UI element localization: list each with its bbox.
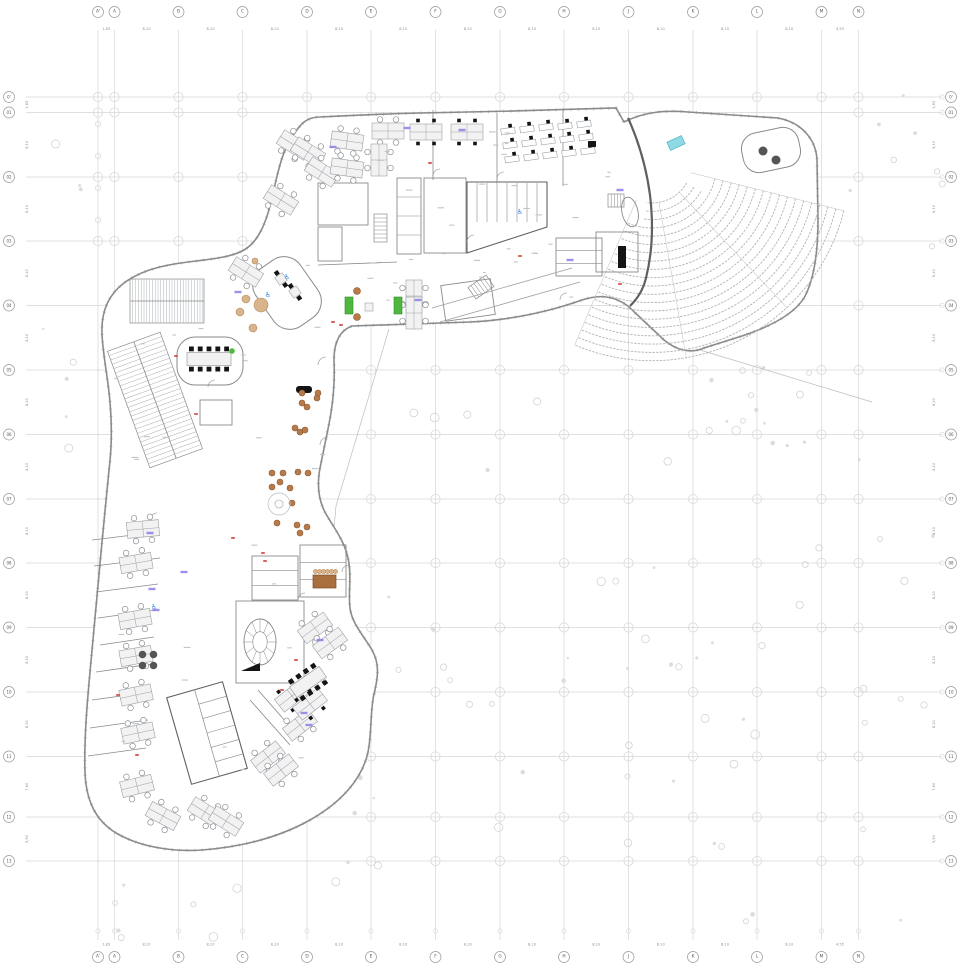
coffee-table <box>365 303 373 311</box>
meeting-table <box>187 347 231 372</box>
tan-seat <box>252 258 258 264</box>
tan-seat <box>242 295 250 303</box>
red-door-mark <box>194 413 198 415</box>
stool <box>302 427 308 433</box>
svg-text:8,10: 8,10 <box>785 27 794 31</box>
svg-text:A: A <box>113 9 116 15</box>
svg-text:13: 13 <box>6 859 12 864</box>
stool <box>274 520 280 526</box>
svg-text:8,10: 8,10 <box>271 27 280 31</box>
red-door-mark <box>261 552 265 554</box>
svg-text:8,10: 8,10 <box>25 720 29 729</box>
svg-text:K: K <box>692 954 695 960</box>
pouf <box>354 314 361 321</box>
svg-text:8,10: 8,10 <box>206 943 215 947</box>
svg-text:G: G <box>498 9 501 15</box>
stool <box>294 522 300 528</box>
svg-text:8,10: 8,10 <box>528 943 537 947</box>
svg-text:G: G <box>498 954 501 960</box>
svg-text:B: B <box>177 954 180 960</box>
svg-text:C: C <box>241 954 244 960</box>
svg-text:7,60: 7,60 <box>932 782 936 791</box>
svg-text:04: 04 <box>948 303 954 308</box>
red-door-mark <box>294 659 298 661</box>
red-door-mark <box>280 689 284 691</box>
red-door-mark <box>339 324 343 326</box>
svg-text:1,83: 1,83 <box>102 27 110 31</box>
pouf <box>354 288 361 295</box>
stool <box>269 484 275 490</box>
red-door-mark <box>116 694 120 696</box>
svg-text:M: M <box>820 954 824 960</box>
svg-text:8,10: 8,10 <box>206 27 215 31</box>
svg-text:8,10: 8,10 <box>25 333 29 342</box>
svg-text:A': A' <box>96 954 100 960</box>
red-door-mark <box>618 283 622 285</box>
svg-text:8,10: 8,10 <box>271 943 280 947</box>
svg-text:11: 11 <box>948 754 954 759</box>
svg-text:K: K <box>692 9 695 15</box>
stool <box>292 425 298 431</box>
room-label-mark <box>147 532 154 534</box>
stool <box>295 469 301 475</box>
svg-text:04: 04 <box>6 303 12 308</box>
tan-seat <box>249 324 257 332</box>
svg-text:E: E <box>370 9 373 15</box>
svg-text:5,50: 5,50 <box>25 834 29 843</box>
svg-text:N: N <box>857 954 860 960</box>
svg-text:A': A' <box>96 9 100 15</box>
svg-text:8,10: 8,10 <box>25 462 29 471</box>
svg-text:08: 08 <box>6 561 12 566</box>
room-label-mark <box>404 127 411 129</box>
svg-text:01: 01 <box>6 110 12 115</box>
svg-text:03: 03 <box>948 239 954 244</box>
svg-text:8,10: 8,10 <box>721 27 730 31</box>
svg-text:11: 11 <box>6 754 12 759</box>
svg-text:01: 01 <box>948 110 954 115</box>
stool <box>315 390 321 396</box>
stool <box>280 470 286 476</box>
svg-text:8,10: 8,10 <box>464 943 473 947</box>
wheelchair-icon: ♿ <box>284 273 290 281</box>
svg-text:07: 07 <box>948 497 954 502</box>
stool <box>287 485 293 491</box>
wheelchair-icon: ♿ <box>517 208 523 216</box>
svg-text:8,10: 8,10 <box>932 720 936 729</box>
svg-text:1,83: 1,83 <box>932 101 936 109</box>
room-label-mark <box>181 571 188 573</box>
svg-text:09: 09 <box>6 625 12 630</box>
svg-text:12: 12 <box>6 815 12 820</box>
red-door-mark <box>263 560 267 562</box>
sofa-green <box>345 297 353 314</box>
room-label-mark <box>301 712 308 714</box>
svg-text:8,10: 8,10 <box>932 655 936 664</box>
svg-text:0': 0' <box>949 95 953 100</box>
room-label-mark <box>330 146 337 148</box>
svg-text:8,10: 8,10 <box>528 27 537 31</box>
svg-text:8,10: 8,10 <box>657 27 666 31</box>
round-table <box>759 147 768 156</box>
svg-text:10: 10 <box>948 690 954 695</box>
svg-text:0': 0' <box>7 95 11 100</box>
red-door-mark <box>428 162 432 164</box>
round-chair <box>150 662 158 670</box>
svg-text:8,10: 8,10 <box>932 398 936 407</box>
stool <box>269 470 275 476</box>
stool <box>304 524 310 530</box>
site-reference-lines <box>331 329 872 560</box>
svg-text:8,10: 8,10 <box>464 27 473 31</box>
svg-text:M: M <box>820 9 824 15</box>
svg-text:J: J <box>627 954 629 960</box>
tan-seat <box>236 308 244 316</box>
svg-text:06: 06 <box>948 432 954 437</box>
svg-text:C: C <box>241 9 244 15</box>
stool <box>299 390 305 396</box>
svg-text:07: 07 <box>6 497 12 502</box>
elevator <box>618 246 626 268</box>
room-label-mark <box>567 259 574 261</box>
svg-text:8,10: 8,10 <box>335 943 344 947</box>
floor-plan-viewport: ♿♿♿♿A'A'AABBCCDDEEFFGGHHJJKKLLMMNN1,831,… <box>0 0 960 965</box>
svg-text:8,10: 8,10 <box>932 333 936 342</box>
svg-text:8,10: 8,10 <box>142 943 151 947</box>
svg-text:13: 13 <box>948 859 954 864</box>
floor-plan-drawing: ♿♿♿♿A'A'AABBCCDDEEFFGGHHJJKKLLMMNN1,831,… <box>0 0 960 965</box>
stool <box>299 400 305 406</box>
round-table <box>772 156 781 165</box>
svg-text:8,10: 8,10 <box>25 655 29 664</box>
svg-text:08: 08 <box>948 561 954 566</box>
stool <box>304 404 310 410</box>
svg-text:05: 05 <box>948 368 954 373</box>
sofa-green <box>394 297 402 314</box>
wheelchair-icon: ♿ <box>265 291 271 299</box>
svg-text:8,10: 8,10 <box>25 398 29 407</box>
svg-text:E: E <box>370 954 373 960</box>
svg-text:8,10: 8,10 <box>592 943 601 947</box>
svg-text:8,10: 8,10 <box>932 204 936 213</box>
svg-text:8,10: 8,10 <box>785 943 794 947</box>
room-label-mark <box>459 129 466 131</box>
svg-text:02: 02 <box>948 175 954 180</box>
room-label-mark <box>153 609 160 611</box>
svg-text:8,10: 8,10 <box>657 943 666 947</box>
stool <box>297 530 303 536</box>
svg-text:8,10: 8,10 <box>932 140 936 149</box>
svg-text:8,10: 8,10 <box>592 27 601 31</box>
svg-text:N: N <box>857 9 860 15</box>
svg-text:8,10: 8,10 <box>142 27 151 31</box>
svg-text:12: 12 <box>948 815 954 820</box>
plant <box>229 348 235 354</box>
round-chair <box>150 651 158 659</box>
svg-text:A: A <box>113 954 116 960</box>
svg-text:H: H <box>562 9 565 15</box>
cafe-table <box>313 575 336 588</box>
svg-text:8,10: 8,10 <box>932 462 936 471</box>
svg-text:8,10: 8,10 <box>721 943 730 947</box>
building <box>85 108 818 850</box>
stool <box>277 479 283 485</box>
svg-text:5,50: 5,50 <box>932 834 936 843</box>
svg-text:10: 10 <box>6 690 12 695</box>
svg-text:8,10: 8,10 <box>25 591 29 600</box>
svg-text:8,10: 8,10 <box>25 269 29 278</box>
svg-text:8,10: 8,10 <box>25 204 29 213</box>
round-chair <box>139 651 147 659</box>
red-door-mark <box>231 537 235 539</box>
red-door-mark <box>518 255 522 257</box>
svg-text:J: J <box>627 9 629 15</box>
room-label-mark <box>317 639 324 641</box>
svg-text:8,10: 8,10 <box>25 526 29 535</box>
room-label-mark <box>149 588 156 590</box>
tan-seat <box>254 298 268 312</box>
svg-text:8,10: 8,10 <box>25 140 29 149</box>
room-label-mark <box>617 189 624 191</box>
svg-text:8,10: 8,10 <box>932 269 936 278</box>
svg-text:4,55: 4,55 <box>836 27 844 31</box>
svg-text:H: H <box>562 954 565 960</box>
svg-text:1,83: 1,83 <box>25 101 29 109</box>
red-door-mark <box>135 754 139 756</box>
svg-text:02: 02 <box>6 175 12 180</box>
svg-text:4,55: 4,55 <box>836 943 844 947</box>
svg-text:06: 06 <box>6 432 12 437</box>
svg-text:8,10: 8,10 <box>399 943 408 947</box>
svg-text:1,83: 1,83 <box>102 943 110 947</box>
room-label-mark <box>306 724 313 726</box>
red-door-mark <box>331 321 335 323</box>
svg-text:03: 03 <box>6 239 12 244</box>
svg-text:8,10: 8,10 <box>932 526 936 535</box>
svg-text:8,10: 8,10 <box>932 591 936 600</box>
room-label-mark <box>235 291 242 293</box>
round-chair <box>139 662 147 670</box>
svg-text:8,10: 8,10 <box>399 27 408 31</box>
svg-text:8,10: 8,10 <box>335 27 344 31</box>
room-label-mark <box>415 299 422 301</box>
svg-text:B: B <box>177 9 180 15</box>
red-door-mark <box>174 355 178 357</box>
svg-text:05: 05 <box>6 368 12 373</box>
stool <box>305 470 311 476</box>
svg-text:09: 09 <box>948 625 954 630</box>
svg-text:7,60: 7,60 <box>25 782 29 791</box>
